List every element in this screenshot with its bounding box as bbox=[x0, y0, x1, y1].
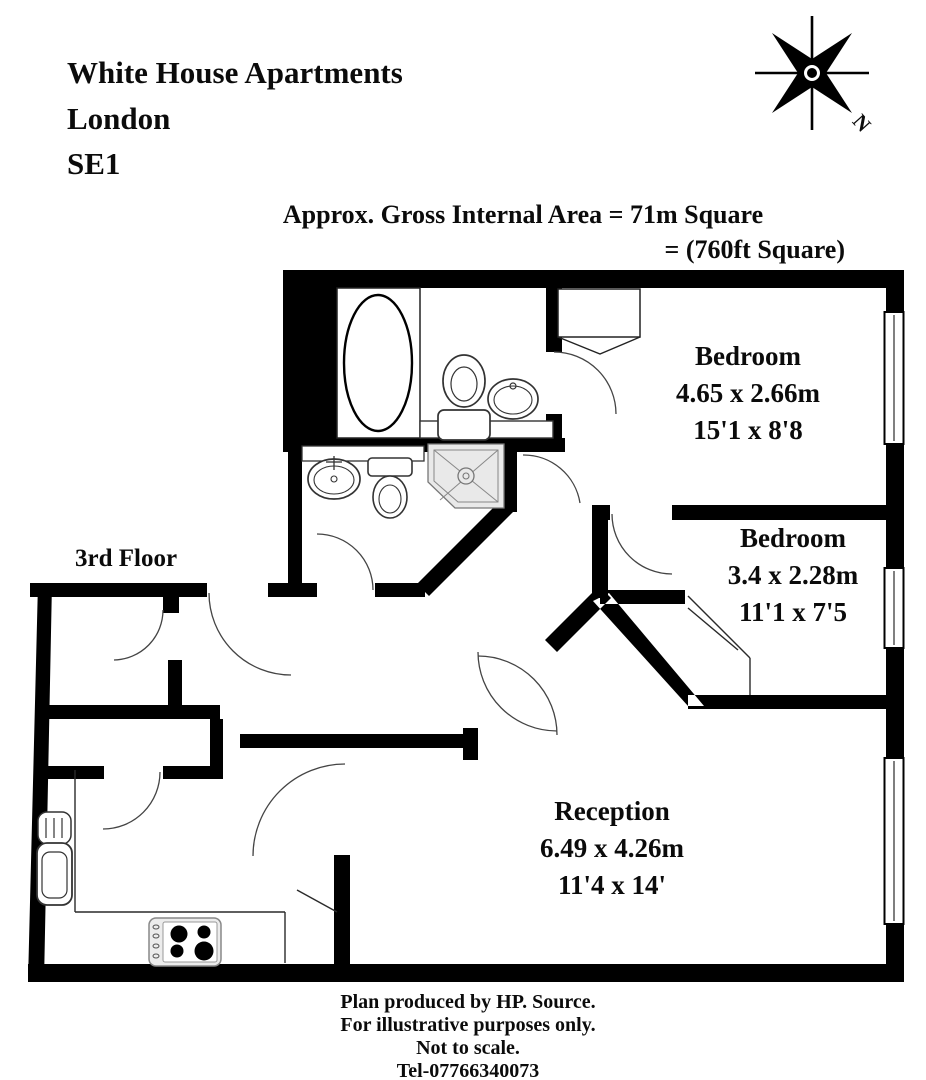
floorplan-page: White House Apartments London SE1 Approx… bbox=[0, 0, 926, 1080]
title-line-1: White House Apartments bbox=[67, 55, 403, 90]
footer-line-2: For illustrative purposes only. bbox=[340, 1014, 595, 1036]
window-bedroom-1 bbox=[885, 312, 904, 444]
compass-north-label: N bbox=[848, 109, 876, 136]
ensuite-entry-door-arc bbox=[523, 455, 580, 503]
bathroom-fixtures bbox=[337, 288, 553, 440]
kitchen-reception-arch-arc bbox=[253, 764, 345, 856]
kitchen-door-arc bbox=[103, 772, 160, 829]
shower-icon bbox=[428, 444, 504, 508]
page-title: White House Apartments London SE1 bbox=[67, 55, 403, 181]
reception-door-arc-1 bbox=[478, 652, 557, 731]
footer-disclaimer: Plan produced by HP. Source. For illustr… bbox=[340, 991, 595, 1080]
area-line-1: Approx. Gross Internal Area = 71m Square bbox=[283, 200, 763, 229]
hob-icon bbox=[149, 918, 221, 966]
window-reception bbox=[885, 758, 904, 924]
closet-door-arc bbox=[114, 610, 163, 660]
footer-line-3: Not to scale. bbox=[416, 1037, 520, 1059]
footer-line-4: Tel-07766340073 bbox=[397, 1060, 540, 1080]
bedroom-1-dims-m: 4.65 x 2.66m bbox=[676, 378, 821, 408]
bedroom-1-name: Bedroom bbox=[695, 341, 802, 371]
compass-rose-icon: N bbox=[755, 16, 876, 137]
reception-dims-m: 6.49 x 4.26m bbox=[540, 833, 685, 863]
bedroom-2-dims-m: 3.4 x 2.28m bbox=[728, 560, 859, 590]
floor-label: 3rd Floor bbox=[75, 545, 177, 572]
ensuite-fixtures bbox=[302, 444, 504, 518]
reception-name: Reception bbox=[554, 796, 669, 826]
title-line-2: London bbox=[67, 101, 170, 136]
kitchen-door-leaf bbox=[297, 890, 337, 912]
bedroom-2-name: Bedroom bbox=[740, 523, 847, 553]
ensuite-internal-door-arc bbox=[317, 534, 373, 590]
ensuite-sink-icon bbox=[308, 456, 360, 499]
bathtub-icon bbox=[344, 295, 412, 431]
area-line-2: = (760ft Square) bbox=[665, 235, 845, 264]
floorplan-canvas: White House Apartments London SE1 Approx… bbox=[0, 0, 926, 1080]
toilet-icon bbox=[438, 355, 490, 440]
title-line-3: SE1 bbox=[67, 146, 120, 181]
bedroom-1-dims-ft: 15'1 x 8'8 bbox=[693, 415, 803, 445]
footer-line-1: Plan produced by HP. Source. bbox=[340, 991, 595, 1013]
reception-dims-ft: 11'4 x 14' bbox=[558, 870, 666, 900]
kitchen-fixtures bbox=[37, 770, 285, 966]
ensuite-toilet-icon bbox=[368, 458, 412, 518]
sink-icon bbox=[488, 379, 538, 419]
bedroom-2-label: Bedroom 3.4 x 2.28m 11'1 x 7'5 bbox=[728, 523, 859, 627]
reception-label: Reception 6.49 x 4.26m 11'4 x 14' bbox=[540, 796, 685, 900]
windows bbox=[885, 312, 904, 924]
bedroom-1-door-arc bbox=[554, 352, 616, 414]
gross-internal-area-note: Approx. Gross Internal Area = 71m Square… bbox=[283, 200, 845, 264]
bedroom-1-label: Bedroom 4.65 x 2.66m 15'1 x 8'8 bbox=[676, 341, 821, 445]
bedroom-2-door-arc bbox=[612, 514, 672, 574]
reception-door-arc-2 bbox=[478, 656, 557, 735]
front-door-arc bbox=[209, 593, 291, 675]
window-bedroom-2 bbox=[885, 568, 904, 648]
kitchen-sink-icon bbox=[37, 812, 72, 905]
wardrobe-icon bbox=[558, 289, 640, 354]
bedroom-2-dims-ft: 11'1 x 7'5 bbox=[739, 597, 847, 627]
